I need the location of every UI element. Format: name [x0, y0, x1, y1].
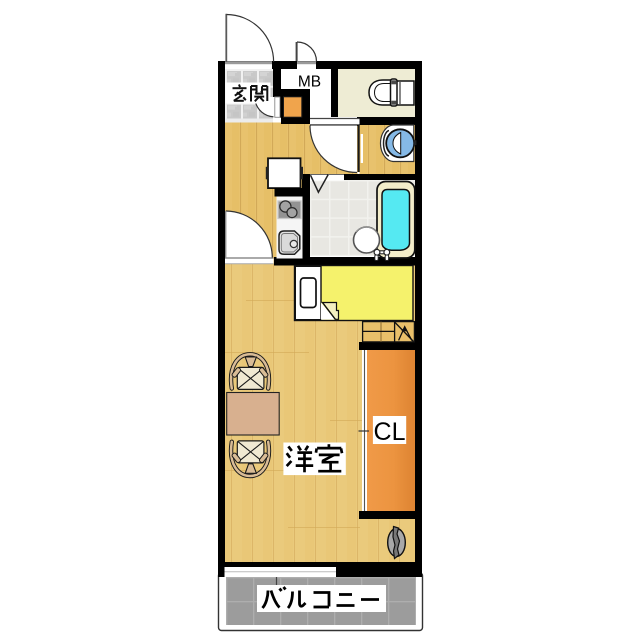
- svg-text:CL: CL: [374, 418, 406, 446]
- svg-text:MB: MB: [298, 74, 321, 91]
